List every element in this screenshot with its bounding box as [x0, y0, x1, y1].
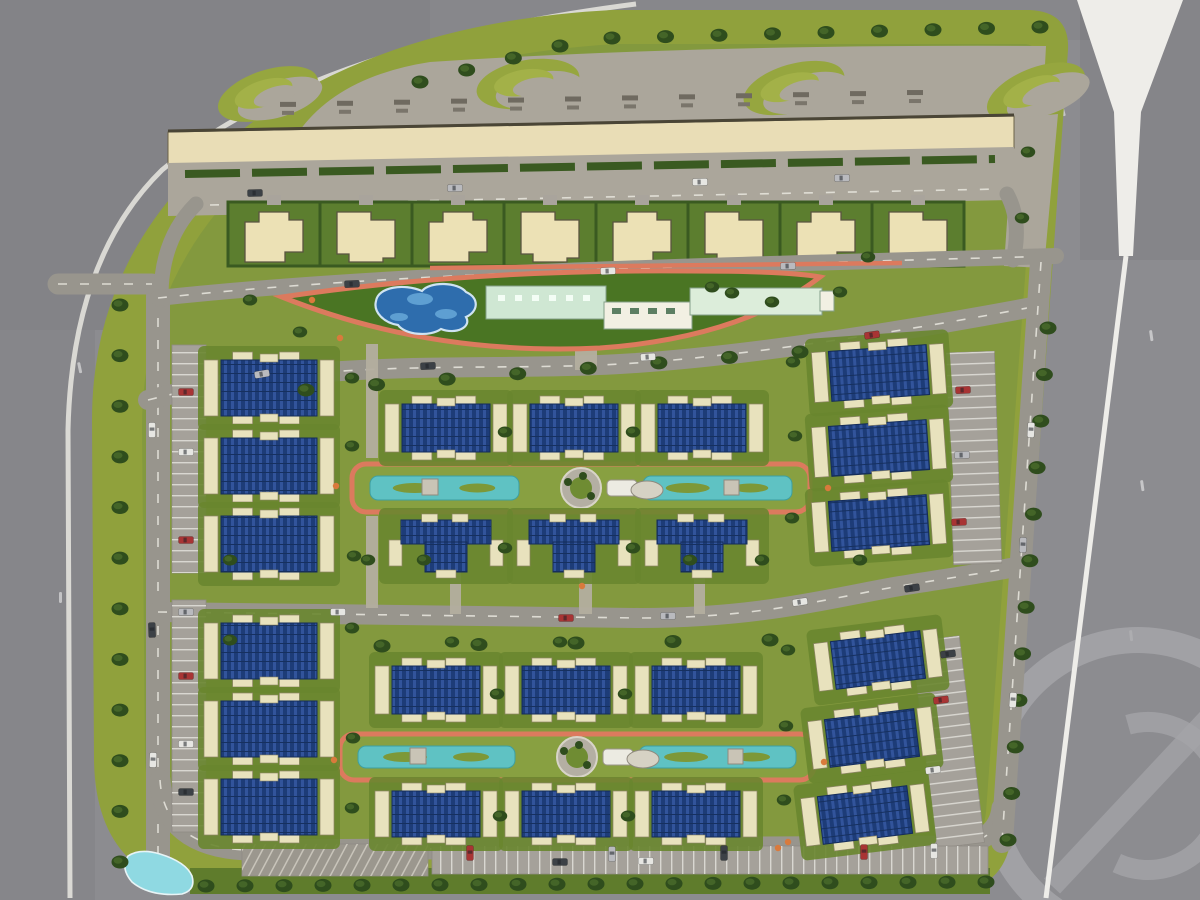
roof-core — [427, 712, 445, 720]
car-windshield — [452, 186, 455, 191]
building-wing — [929, 418, 946, 469]
tree-highlight — [782, 646, 790, 651]
tree-highlight — [980, 24, 989, 30]
car — [1027, 422, 1035, 437]
tree-highlight — [1022, 148, 1030, 153]
tree-highlight — [1002, 835, 1011, 841]
car — [179, 741, 194, 748]
planter-label — [565, 96, 581, 101]
car-windshield — [930, 768, 934, 773]
car-windshield — [959, 453, 962, 458]
tree-highlight — [554, 638, 562, 643]
tree-highlight — [1034, 22, 1043, 28]
car-windshield — [960, 388, 963, 393]
car-windshield — [909, 586, 913, 591]
tree-highlight — [346, 442, 354, 447]
roof-core — [437, 450, 455, 458]
tree-highlight — [114, 807, 123, 813]
solar-roof — [817, 786, 912, 845]
car — [955, 386, 970, 394]
tree-highlight — [1027, 509, 1036, 515]
building-wing — [375, 666, 389, 714]
tree-highlight — [114, 351, 123, 357]
apartment-building — [198, 424, 340, 508]
tree-highlight — [780, 722, 788, 727]
building-wing — [204, 779, 218, 835]
roof-core — [427, 660, 445, 668]
tree-highlight — [723, 353, 732, 359]
solar-roof — [401, 520, 491, 544]
solar-roof — [652, 791, 740, 837]
solar-roof — [392, 791, 480, 837]
planter-label — [396, 109, 408, 113]
tree-highlight — [1023, 556, 1032, 562]
roof-core — [260, 414, 278, 422]
villa-driveway — [727, 195, 741, 205]
planter-label — [451, 99, 467, 104]
car — [467, 846, 474, 861]
roof-core — [260, 833, 278, 841]
car-windshield — [938, 698, 942, 703]
solar-roof — [824, 709, 919, 768]
apartment-building — [635, 508, 769, 584]
planter-label — [508, 98, 524, 103]
apartment-building — [635, 390, 769, 466]
tree-highlight — [667, 637, 676, 643]
car — [179, 609, 194, 616]
flower-shrub — [825, 485, 831, 491]
tree-highlight — [494, 812, 502, 817]
tree-highlight — [441, 374, 450, 380]
plaza-tree — [587, 492, 595, 500]
tree-highlight — [239, 881, 248, 887]
tree-highlight — [346, 804, 354, 809]
building-wing — [641, 404, 655, 452]
building-wing — [375, 791, 389, 837]
flower-shrub — [331, 757, 337, 763]
tree-highlight — [1020, 603, 1029, 609]
car — [931, 844, 938, 859]
roof-core — [687, 660, 705, 668]
villa-driveway — [635, 195, 649, 205]
solar-roof — [522, 666, 610, 714]
villa-plot — [412, 195, 504, 266]
pedestrian-walkway — [366, 344, 378, 458]
car-windshield — [610, 852, 615, 855]
car — [954, 451, 969, 459]
solar-roof — [553, 542, 595, 572]
building-wing — [204, 701, 218, 757]
car — [179, 389, 194, 396]
tree-highlight — [499, 544, 507, 549]
car-windshield — [184, 742, 187, 747]
planter-label — [339, 110, 351, 114]
building-wing — [743, 666, 757, 714]
park-kiosk — [410, 748, 426, 764]
tree-highlight — [294, 328, 302, 333]
tree-highlight — [300, 385, 309, 391]
tree-highlight — [778, 796, 786, 801]
clubhouse-window-row — [666, 308, 675, 314]
master-plan-canvas — [0, 0, 1200, 900]
tree-highlight — [927, 25, 936, 31]
car — [692, 178, 707, 185]
solar-roof — [221, 623, 317, 679]
apartment-building — [507, 390, 641, 466]
tree-highlight — [668, 879, 677, 885]
building-entrance-block — [422, 514, 438, 522]
car — [331, 609, 346, 616]
car-windshield — [564, 616, 567, 621]
apartment-building — [804, 329, 953, 417]
tree-highlight — [766, 29, 775, 35]
roof-core — [260, 677, 278, 685]
water-canal — [643, 476, 792, 500]
clubhouse-building — [604, 302, 692, 329]
clubhouse-skylight — [515, 295, 522, 301]
building-wing — [645, 540, 658, 566]
car — [1019, 537, 1027, 552]
road-marking-dash — [59, 592, 62, 603]
solar-roof — [828, 345, 929, 402]
tree-highlight — [554, 41, 563, 47]
solar-roof — [221, 438, 317, 494]
building-wing — [204, 623, 218, 679]
villa-driveway — [359, 195, 373, 205]
asphalt-shade-patch — [0, 330, 95, 900]
roof-core — [557, 835, 575, 843]
planter-label — [624, 104, 636, 108]
roof-core — [868, 341, 887, 350]
car-windshield — [605, 269, 608, 274]
tree-highlight — [1042, 323, 1051, 329]
building-wing — [320, 701, 334, 757]
planter-label — [337, 101, 353, 106]
tree-highlight — [619, 690, 627, 695]
car-windshield — [644, 859, 647, 864]
roof-core — [437, 398, 455, 406]
car — [344, 280, 359, 288]
tree-highlight — [200, 881, 209, 887]
tree-highlight — [789, 432, 797, 437]
planter-label — [736, 93, 752, 98]
tree-highlight — [824, 878, 833, 884]
tree-highlight — [794, 347, 803, 353]
tree-highlight — [1009, 742, 1018, 748]
car-windshield — [1011, 697, 1016, 701]
tree-highlight — [512, 880, 521, 886]
car — [661, 613, 676, 620]
flower-shrub — [333, 483, 339, 489]
tree-highlight — [317, 881, 326, 887]
car — [447, 184, 462, 191]
tree-highlight — [764, 635, 773, 641]
flower-shrub — [337, 335, 343, 341]
car-windshield — [862, 850, 867, 853]
tree-highlight — [746, 879, 755, 885]
car-windshield — [150, 627, 155, 630]
plaza-tree — [560, 747, 568, 755]
apartment-building — [804, 479, 953, 567]
planter-label — [622, 95, 638, 100]
tree-highlight — [224, 556, 232, 561]
tree-highlight — [244, 296, 252, 301]
flower-shrub — [775, 845, 781, 851]
roof-core — [872, 395, 891, 404]
car — [179, 789, 194, 796]
tree-highlight — [873, 26, 882, 32]
pool-shallow-area — [407, 293, 433, 305]
tree-highlight — [356, 881, 365, 887]
roof-core — [693, 450, 711, 458]
roof-core — [565, 398, 583, 406]
building-wing — [929, 493, 946, 544]
tree-highlight — [370, 380, 379, 386]
roof-core — [260, 354, 278, 362]
apartment-building — [379, 508, 513, 584]
tree-highlight — [551, 880, 560, 886]
planter-label — [850, 91, 866, 96]
planter-label — [909, 99, 921, 103]
roof-core — [260, 570, 278, 578]
tree-highlight — [376, 641, 385, 647]
car-windshield — [697, 180, 700, 185]
car-windshield — [722, 851, 727, 854]
clubhouse-window-row — [612, 308, 621, 314]
car — [933, 696, 949, 705]
apartment-building — [804, 404, 953, 492]
planter-label — [394, 100, 410, 105]
building-wing — [517, 540, 530, 566]
apartment-building — [369, 652, 503, 728]
tree-highlight — [590, 879, 599, 885]
plaza-tree — [579, 472, 587, 480]
tree-highlight — [395, 880, 404, 886]
clubhouse-skylight — [532, 295, 539, 301]
roof-core — [557, 660, 575, 668]
roof-core — [260, 773, 278, 781]
apartment-building — [379, 390, 513, 466]
building-wing — [385, 404, 399, 452]
villa-driveway — [543, 195, 557, 205]
villa-driveway — [819, 195, 833, 205]
car-windshield — [150, 428, 155, 431]
car-windshield — [839, 176, 842, 181]
tree-highlight — [114, 402, 123, 408]
apartment-building — [369, 777, 503, 851]
car-windshield — [349, 282, 352, 287]
solar-roof — [221, 701, 317, 757]
car-windshield — [785, 264, 788, 269]
tree-highlight — [473, 880, 482, 886]
park-kiosk — [724, 480, 739, 495]
car — [640, 353, 655, 361]
water-canal — [370, 476, 519, 500]
tree-highlight — [1034, 416, 1043, 422]
solar-roof — [652, 666, 740, 714]
tree-highlight — [114, 655, 123, 661]
clubhouse-skylight — [566, 295, 573, 301]
roof-core — [260, 432, 278, 440]
car — [925, 766, 941, 775]
villa-building — [337, 212, 395, 262]
villa-plot — [596, 195, 688, 266]
building-wing — [204, 360, 218, 416]
car-windshield — [468, 851, 473, 854]
clubhouse-building — [820, 291, 834, 311]
planter-label — [793, 92, 809, 97]
tree-highlight — [834, 288, 842, 293]
tree-highlight — [418, 556, 426, 561]
tree-highlight — [627, 544, 635, 549]
building-wing — [743, 791, 757, 837]
building-entrance-block — [436, 570, 456, 578]
roof-core — [868, 491, 887, 500]
tree-highlight — [606, 33, 615, 39]
tree-highlight — [224, 636, 232, 641]
car — [179, 449, 194, 456]
building-entrance-block — [580, 514, 596, 522]
tree-highlight — [980, 877, 989, 883]
tree-highlight — [863, 878, 872, 884]
tree-highlight — [114, 452, 123, 458]
plaza-tree — [575, 741, 583, 749]
building-wing — [204, 438, 218, 494]
car-windshield — [184, 610, 187, 615]
plaza-tree — [564, 478, 572, 486]
site-plan-svg — [0, 0, 1200, 900]
building-wing — [320, 779, 334, 835]
villa-driveway — [451, 195, 465, 205]
tree-highlight — [511, 369, 520, 375]
car-windshield — [558, 860, 561, 865]
roof-core — [557, 785, 575, 793]
building-wing — [811, 502, 828, 553]
car-windshield — [184, 538, 187, 543]
solar-roof — [522, 791, 610, 837]
tree-highlight — [659, 32, 668, 38]
car — [1009, 692, 1017, 707]
villa-plot — [228, 195, 320, 266]
tree-highlight — [114, 756, 123, 762]
tree-highlight — [114, 300, 123, 306]
water-canal — [358, 746, 515, 768]
car — [149, 423, 156, 438]
canal-island — [664, 752, 708, 762]
roof-core — [557, 712, 575, 720]
apartment-building — [198, 765, 340, 849]
tree-highlight — [941, 878, 950, 884]
car-windshield — [869, 333, 873, 338]
tree-highlight — [507, 53, 516, 59]
car — [600, 267, 615, 275]
roof-core — [260, 492, 278, 500]
tree-highlight — [414, 77, 423, 83]
planter-label — [567, 105, 579, 109]
park-kiosk — [422, 479, 438, 495]
car-windshield — [666, 614, 669, 619]
apartment-building — [198, 502, 340, 586]
clubhouse-window-row — [630, 308, 639, 314]
tree-highlight — [1016, 649, 1025, 655]
solar-roof — [392, 666, 480, 714]
building-entrance-block — [550, 514, 566, 522]
clubhouse-skylight — [583, 295, 590, 301]
building-wing — [811, 352, 828, 403]
tree-highlight — [713, 31, 722, 37]
park-oval-feature — [631, 481, 663, 499]
tree-highlight — [862, 253, 870, 258]
planter-label — [681, 103, 693, 107]
villa-plot — [504, 195, 596, 266]
linear-park — [352, 464, 810, 512]
building-wing — [811, 427, 828, 478]
tree-highlight — [707, 879, 716, 885]
car-windshield — [945, 652, 949, 657]
building-entrance-block — [564, 570, 584, 578]
tree-highlight — [1005, 789, 1014, 795]
solar-roof — [828, 495, 929, 552]
tree-highlight — [766, 298, 774, 303]
car — [780, 262, 795, 270]
car — [148, 622, 156, 637]
roof-core — [260, 695, 278, 703]
building-wing — [749, 404, 763, 452]
tree-highlight — [114, 604, 123, 610]
building-wing — [389, 540, 402, 566]
car-windshield — [336, 610, 339, 615]
roof-core — [693, 398, 711, 406]
apartment-building — [198, 609, 340, 693]
tree-highlight — [706, 283, 714, 288]
apartment-building — [198, 346, 340, 430]
apartment-building — [499, 652, 633, 728]
roof-core — [260, 617, 278, 625]
building-wing — [320, 438, 334, 494]
tree-highlight — [756, 556, 764, 561]
building-wing — [635, 666, 649, 714]
car — [149, 752, 157, 767]
clubhouse-skylight — [549, 295, 556, 301]
car-windshield — [645, 355, 649, 360]
apartment-building — [198, 687, 340, 771]
car — [179, 673, 194, 680]
car — [861, 845, 868, 860]
villa-building — [705, 212, 763, 262]
water-canal — [639, 746, 796, 768]
car — [553, 859, 568, 866]
tree-highlight — [1016, 214, 1024, 219]
tree-highlight — [347, 734, 355, 739]
roof-core — [687, 785, 705, 793]
solar-roof — [221, 779, 317, 835]
planter-label — [510, 107, 522, 111]
plaza-tree — [583, 761, 591, 769]
car-windshield — [1021, 542, 1026, 545]
solar-roof — [425, 542, 467, 572]
tree-highlight — [629, 879, 638, 885]
apartment-building — [507, 508, 641, 584]
planter-label — [795, 101, 807, 105]
tree-highlight — [786, 514, 794, 519]
canal-island — [453, 753, 489, 762]
car-windshield — [151, 757, 156, 760]
car-windshield — [797, 600, 801, 605]
planter-label — [852, 100, 864, 104]
building-wing — [505, 791, 519, 837]
tree-highlight — [446, 638, 454, 643]
roof-core — [868, 416, 887, 425]
